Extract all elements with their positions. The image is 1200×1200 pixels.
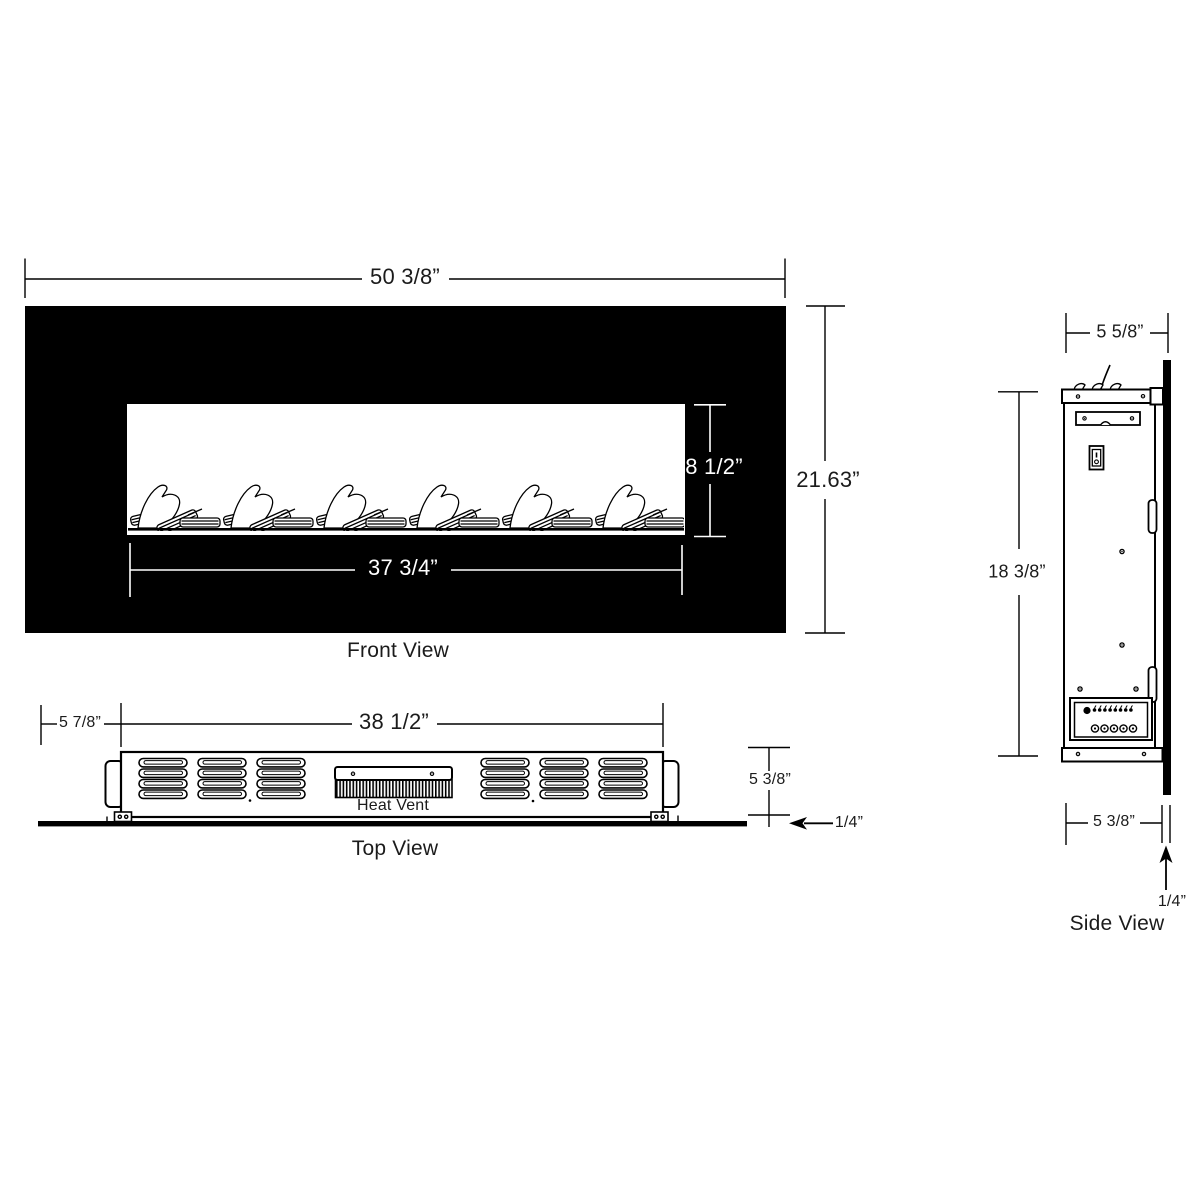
power-toggle-switch bbox=[1090, 446, 1104, 470]
diagram-line-art bbox=[0, 0, 1200, 1200]
top-wall-bracket bbox=[1151, 388, 1164, 405]
glass-front-panel bbox=[38, 821, 747, 826]
panel-buttons bbox=[1091, 725, 1136, 732]
glass-side-panel bbox=[1163, 360, 1171, 795]
dim-glass-thickness-label: 1/4” bbox=[835, 814, 863, 832]
side-view-drawing bbox=[998, 313, 1173, 890]
mounting-bracket-left bbox=[107, 812, 132, 822]
dim-body-width-label: 38 1/2” bbox=[359, 709, 429, 735]
control-panel bbox=[1070, 698, 1152, 740]
dim-body-depth-label: 5 3/8” bbox=[749, 771, 791, 789]
top-view-caption: Top View bbox=[352, 837, 438, 861]
dim-body-height-label: 18 3/8” bbox=[988, 562, 1045, 583]
hanger-plate bbox=[1076, 412, 1140, 425]
dim-glass-offset-label: 5 7/8” bbox=[59, 714, 101, 732]
panel-power-led bbox=[1083, 707, 1090, 714]
dim-overall-height-label: 21.63” bbox=[796, 467, 860, 493]
body-screw-dot bbox=[249, 799, 252, 802]
dim-overall-width-label: 50 3/8” bbox=[370, 264, 440, 290]
dim-glass-thickness-arrow bbox=[789, 817, 833, 830]
side-clip-upper bbox=[1149, 500, 1157, 533]
fireplace-dimension-diagram: 50 3/8” 21.63” 8 1/2” 37 3/4” Front View… bbox=[0, 0, 1200, 1200]
mounting-bracket-right bbox=[651, 812, 678, 822]
heat-vent bbox=[335, 767, 452, 798]
dim-overall-depth-label: 5 5/8” bbox=[1096, 322, 1143, 343]
ember-shelf-line bbox=[128, 528, 684, 531]
side-clip-lower bbox=[1149, 667, 1157, 702]
top-view-drawing bbox=[38, 703, 833, 830]
dim-side-glass-thickness-arrow bbox=[1160, 846, 1173, 891]
heat-vent-label: Heat Vent bbox=[357, 797, 429, 815]
side-view-caption: Side View bbox=[1070, 912, 1165, 936]
dim-opening-height-label: 8 1/2” bbox=[685, 454, 742, 480]
dim-opening-width-label: 37 3/4” bbox=[368, 555, 438, 581]
dim-bottom-depth-label: 5 3/8” bbox=[1093, 813, 1135, 831]
body-screw-dot bbox=[532, 800, 535, 803]
dim-side-glass-thickness-label: 1/4” bbox=[1158, 893, 1186, 911]
side-body-panel bbox=[1064, 403, 1155, 749]
front-view-caption: Front View bbox=[347, 639, 449, 663]
